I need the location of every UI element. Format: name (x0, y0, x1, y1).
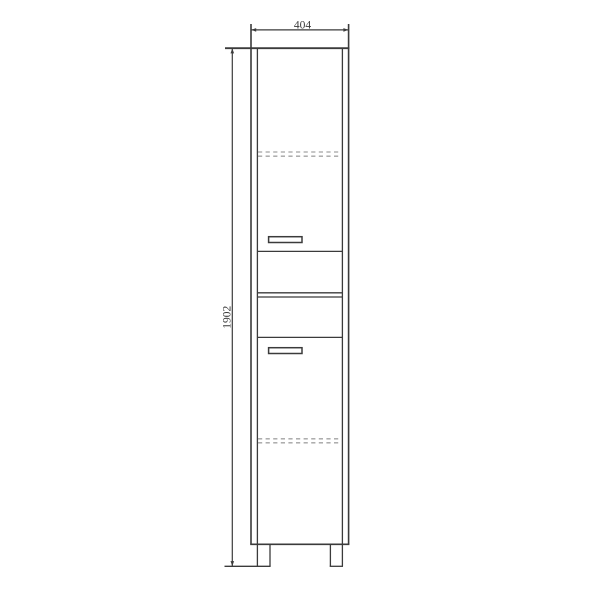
svg-text:404: 404 (294, 20, 312, 32)
svg-text:1902: 1902 (221, 305, 233, 328)
